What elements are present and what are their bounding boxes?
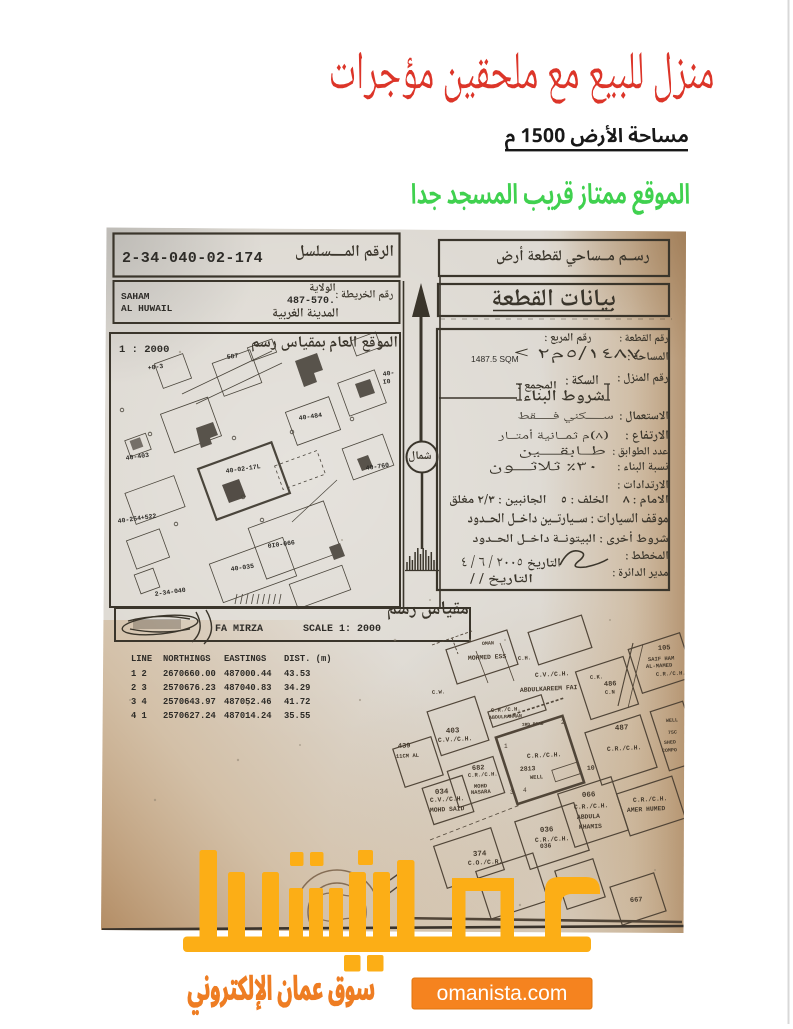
svg-text:34.29: 34.29 bbox=[284, 683, 310, 693]
svg-text:41.72: 41.72 bbox=[284, 697, 310, 707]
svg-text:1: 1 bbox=[504, 743, 508, 750]
svg-text:35.55: 35.55 bbox=[284, 711, 310, 721]
svg-text:11CM AL: 11CM AL bbox=[396, 752, 420, 760]
svg-text:487040.83: 487040.83 bbox=[224, 683, 272, 693]
svg-text:4: 4 bbox=[523, 787, 527, 794]
svg-text:439: 439 bbox=[398, 742, 411, 751]
svg-text:AL HUWAIL: AL HUWAIL bbox=[121, 303, 173, 314]
svg-text:2 3: 2 3 bbox=[131, 683, 147, 693]
svg-text:2570676.23: 2570676.23 bbox=[163, 683, 216, 693]
svg-text:3 4: 3 4 bbox=[131, 697, 148, 707]
svg-text:NASARA: NASARA bbox=[471, 788, 492, 796]
svg-text:487-570.: 487-570. bbox=[287, 296, 335, 307]
svg-text:WELL: WELL bbox=[666, 717, 678, 724]
svg-text:403: 403 bbox=[446, 727, 460, 736]
svg-text:487014.24: 487014.24 bbox=[224, 711, 272, 721]
svg-text:036: 036 bbox=[540, 826, 554, 835]
svg-text:2813: 2813 bbox=[520, 765, 536, 773]
svg-text:SCALE 1: 2000: SCALE 1: 2000 bbox=[303, 624, 381, 635]
svg-text:1487.5 SQM: 1487.5 SQM bbox=[471, 354, 519, 364]
svg-text:DIST. (m): DIST. (m) bbox=[284, 654, 332, 664]
svg-text:AL-MAMED: AL-MAMED bbox=[646, 662, 673, 670]
svg-text:OMAN: OMAN bbox=[482, 640, 494, 647]
svg-text:ABDULA: ABDULA bbox=[577, 813, 601, 821]
svg-text:EASTINGS: EASTINGS bbox=[224, 654, 266, 664]
svg-text:066: 066 bbox=[582, 791, 596, 800]
svg-text:SAHAM: SAHAM bbox=[121, 291, 150, 302]
svg-text:3RD ROAD: 3RD ROAD bbox=[522, 721, 544, 728]
svg-text:I0: I0 bbox=[382, 378, 391, 386]
svg-text:2570643.97: 2570643.97 bbox=[163, 697, 216, 707]
svg-text:487: 487 bbox=[615, 724, 629, 733]
svg-text:75C: 75C bbox=[668, 730, 677, 736]
svg-text:2: 2 bbox=[561, 719, 565, 726]
svg-text:1 : 2000: 1 : 2000 bbox=[119, 344, 169, 356]
svg-text:374: 374 bbox=[473, 850, 487, 859]
svg-text:C.H.: C.H. bbox=[518, 654, 532, 662]
svg-text:1 2: 1 2 bbox=[131, 669, 147, 679]
svg-text:SHED: SHED bbox=[664, 739, 676, 746]
svg-text:105: 105 bbox=[658, 644, 671, 653]
svg-text:KHAMIS: KHAMIS bbox=[579, 823, 603, 831]
svg-text:C.K.: C.K. bbox=[590, 673, 604, 681]
svg-text:487000.44: 487000.44 bbox=[224, 669, 272, 679]
svg-text:10: 10 bbox=[587, 765, 595, 772]
svg-text:omanista.com: omanista.com bbox=[437, 982, 568, 1005]
svg-text:COMPO: COMPO bbox=[662, 747, 677, 754]
svg-text:43.53: 43.53 bbox=[284, 669, 310, 679]
svg-text:2570627.24: 2570627.24 bbox=[163, 711, 217, 721]
svg-text:486: 486 bbox=[604, 680, 617, 689]
svg-text:2-34-040-02-174: 2-34-040-02-174 bbox=[122, 250, 263, 267]
svg-text:LINE: LINE bbox=[131, 654, 152, 664]
svg-text:FA MIRZA: FA MIRZA bbox=[215, 624, 263, 635]
svg-text:NORTHINGS: NORTHINGS bbox=[163, 654, 211, 664]
svg-text:667: 667 bbox=[630, 896, 643, 905]
svg-text:2670660.00: 2670660.00 bbox=[163, 669, 216, 679]
svg-text:4 1: 4 1 bbox=[131, 711, 147, 721]
svg-text:C.N: C.N bbox=[605, 688, 615, 696]
svg-text:C.W.: C.W. bbox=[432, 688, 446, 696]
svg-text:WELL: WELL bbox=[530, 773, 544, 781]
svg-text:036: 036 bbox=[540, 842, 552, 850]
svg-text:3: 3 bbox=[510, 789, 514, 796]
